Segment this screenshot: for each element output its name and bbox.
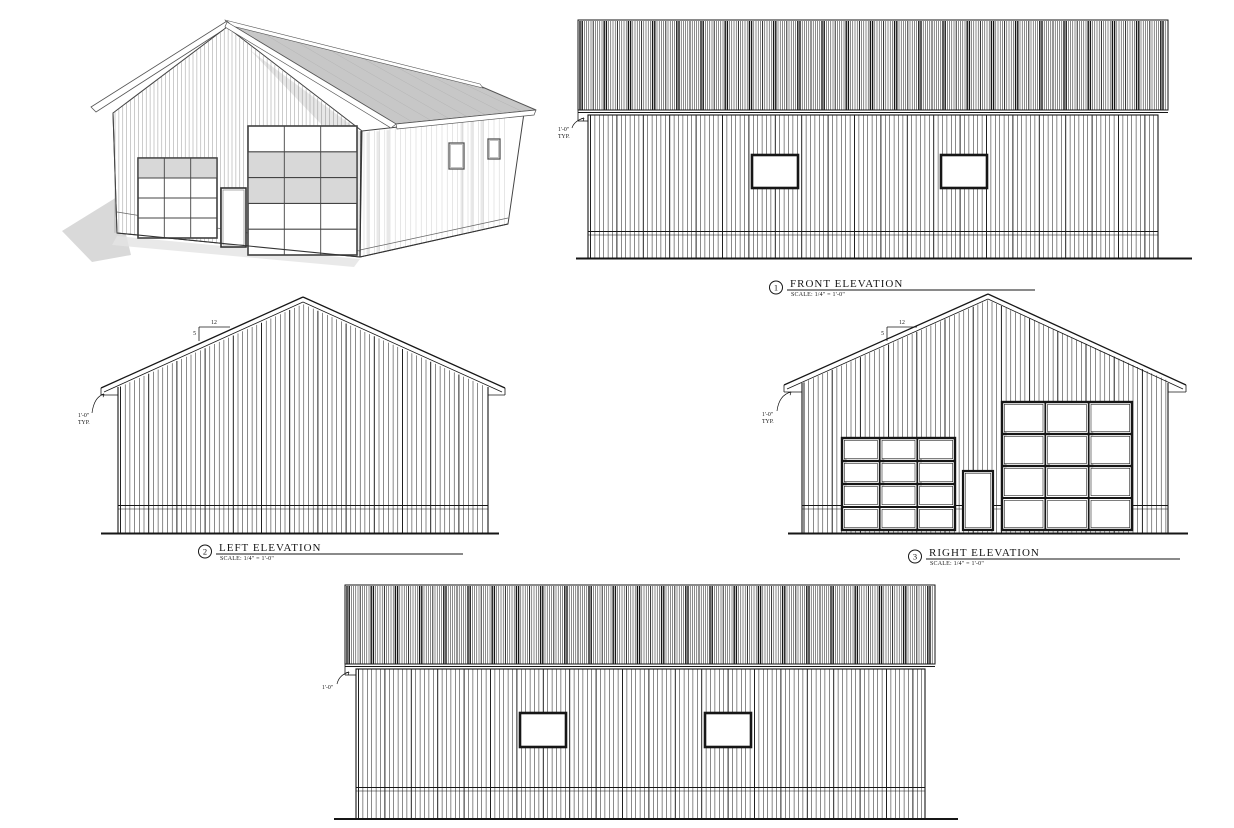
right-eave-overhang-dimension: 1'-0" bbox=[762, 412, 773, 418]
left-pitch-run-label: 12 bbox=[211, 320, 217, 326]
right-elevation-title: RIGHT ELEVATION bbox=[929, 547, 1040, 559]
left-pitch-rise-label: 5 bbox=[193, 331, 196, 337]
left-eave-overhang-typ: TYP. bbox=[78, 420, 90, 426]
left-elevation-drawing bbox=[92, 297, 505, 534]
front-elevation-drawing bbox=[572, 20, 1192, 259]
right-pitch-run-label: 12 bbox=[899, 320, 905, 326]
front-eave-overhang-dimension: 1'-0" bbox=[558, 127, 569, 133]
right-eave-overhang-typ: TYP. bbox=[762, 419, 774, 425]
front-elevation-scale: SCALE: 1/4" = 1'-0" bbox=[791, 292, 845, 298]
front-elevation-number: 1 bbox=[774, 283, 778, 293]
right-elevation-scale: SCALE: 1/4" = 1'-0" bbox=[930, 561, 984, 567]
left-elevation-scale: SCALE: 1/4" = 1'-0" bbox=[220, 556, 274, 562]
elevations-canvas: 1'-0" TYP. 1'-0" TYP. 1'-0" TYP. 1'-0" 1… bbox=[0, 0, 1234, 828]
drawing-sheet: 1'-0" TYP. 1'-0" TYP. 1'-0" TYP. 1'-0" 1… bbox=[0, 0, 1234, 828]
left-elevation-number: 2 bbox=[203, 547, 207, 557]
perspective-view-3d bbox=[62, 20, 536, 267]
left-elevation-title: LEFT ELEVATION bbox=[219, 542, 322, 554]
right-pitch-rise-label: 5 bbox=[881, 331, 884, 337]
right-elevation-number: 3 bbox=[913, 552, 917, 562]
right-elevation-drawing bbox=[777, 294, 1188, 534]
rear-eave-overhang-dimension: 1'-0" bbox=[322, 685, 333, 691]
rear-elevation-drawing bbox=[334, 585, 958, 819]
front-elevation-title: FRONT ELEVATION bbox=[790, 278, 903, 290]
left-eave-overhang-dimension: 1'-0" bbox=[78, 413, 89, 419]
front-eave-overhang-typ: TYP. bbox=[558, 134, 570, 140]
